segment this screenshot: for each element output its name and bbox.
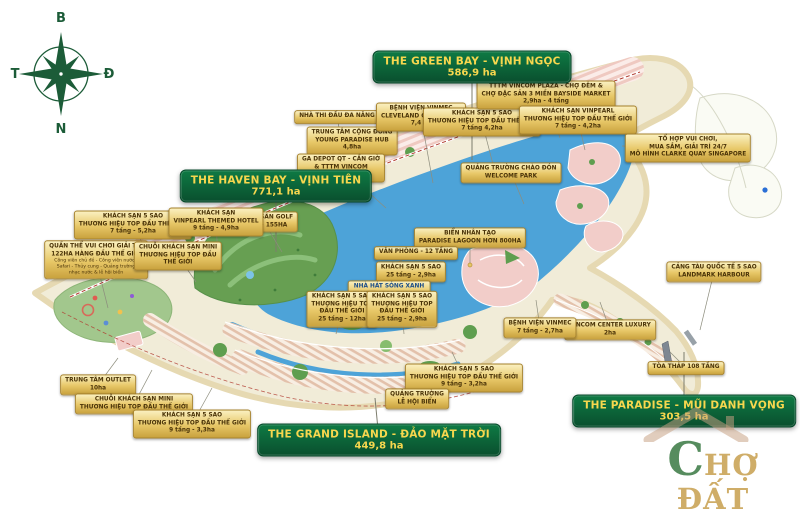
compass-north-label: B [56,11,66,26]
compass-rose: B N T Đ [8,6,118,136]
poi-dot [762,187,767,192]
future-phase-outline [692,86,782,218]
compass-south-label: N [56,122,67,136]
watermark-logo: CHỢ ĐẤT [628,404,798,516]
compass-west-label: T [11,67,20,82]
compass-east-label: Đ [104,67,115,82]
watermark-c: C [667,432,704,486]
